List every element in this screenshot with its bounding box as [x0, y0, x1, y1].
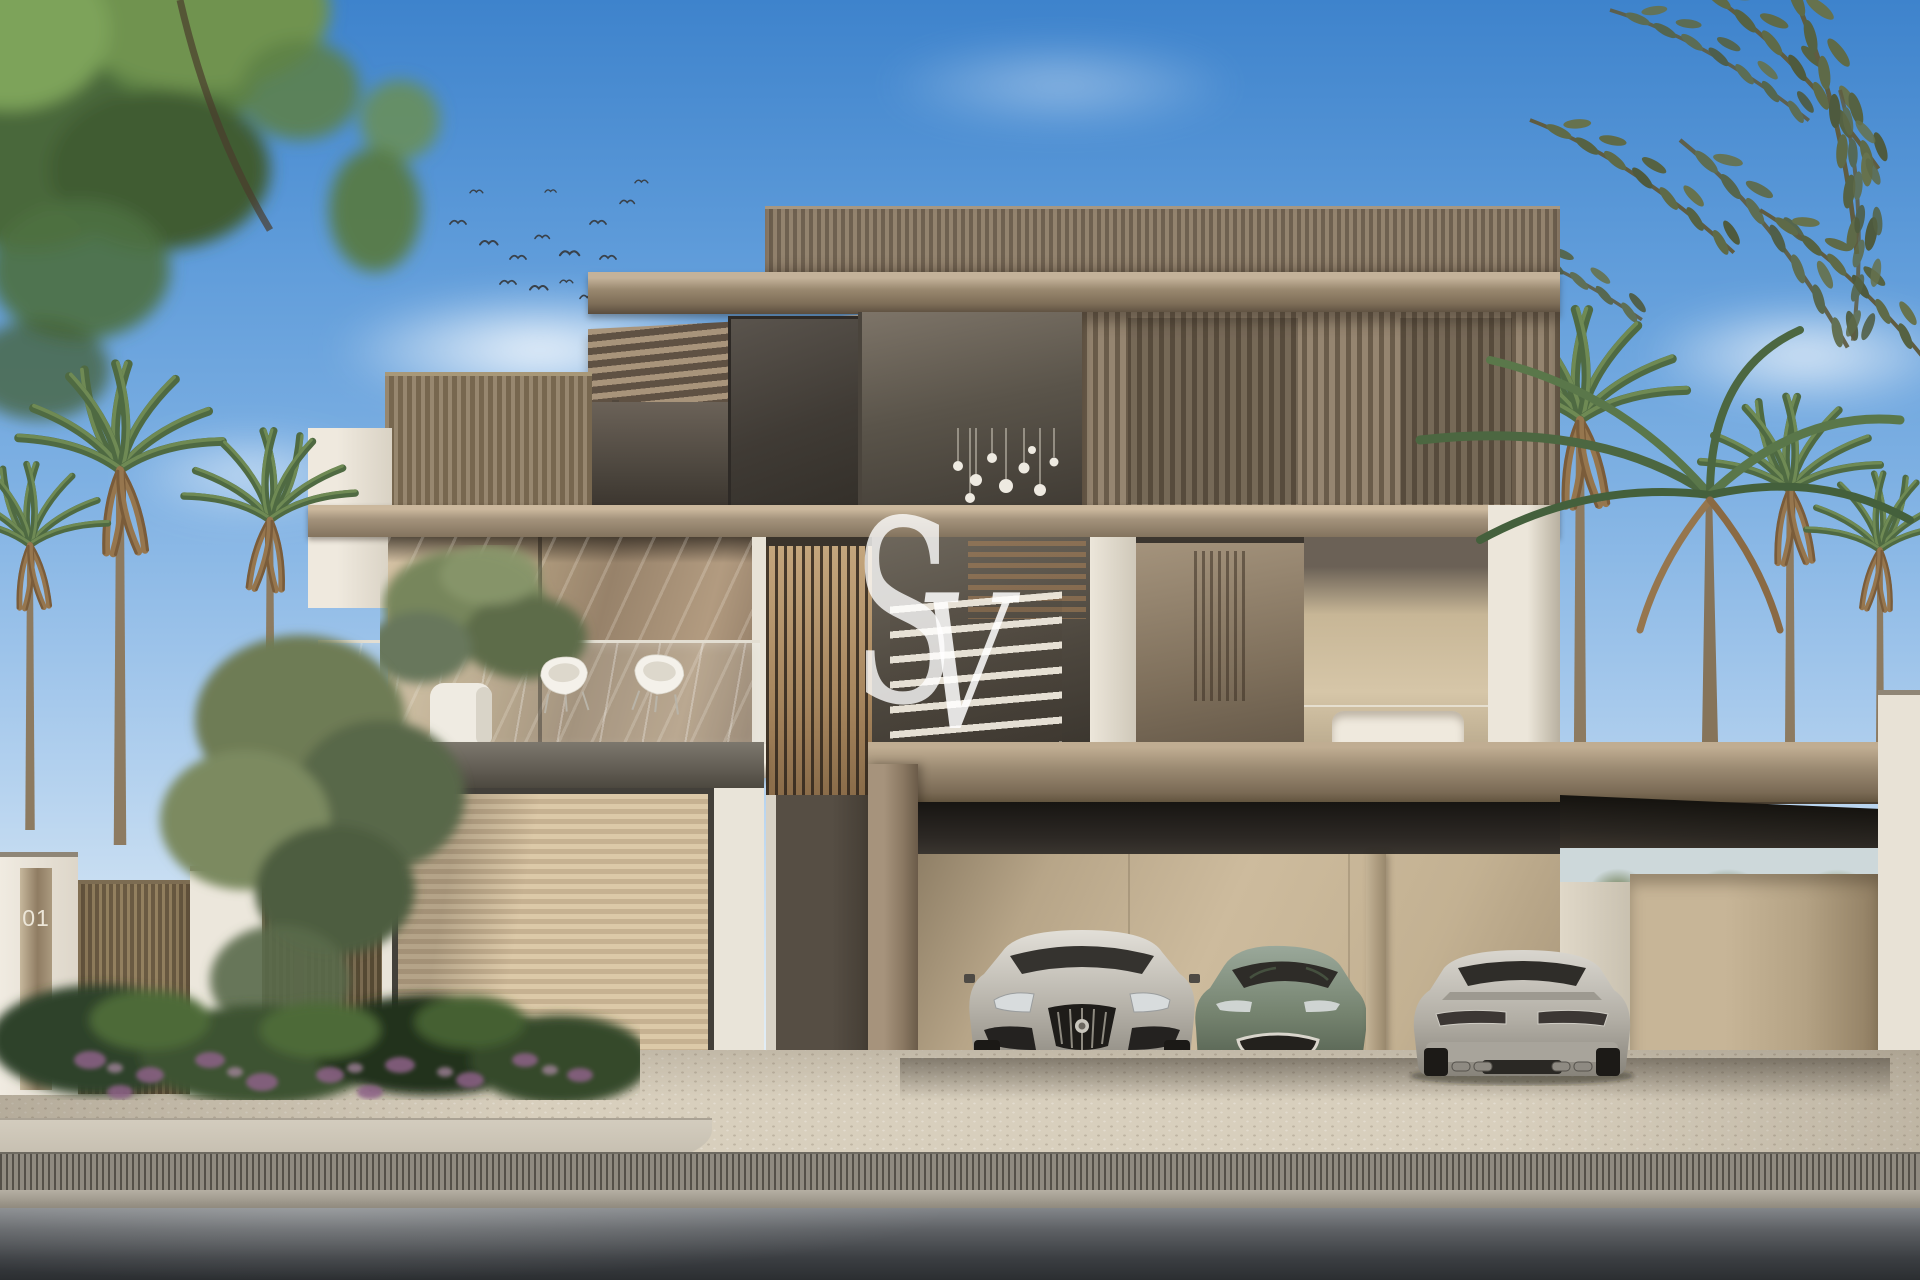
- entrance-door: [766, 795, 872, 1063]
- entrance-louver-screen: [766, 537, 872, 795]
- carport-shadow: [900, 1058, 1890, 1100]
- boundary-wall-right: [1878, 690, 1920, 1095]
- road-light-mist: [0, 1208, 1056, 1280]
- car-silver-rear: [1396, 910, 1648, 1086]
- staircase-window: [872, 537, 1090, 765]
- palm-tree-foreground-right: [1240, 300, 1920, 742]
- garage-opening-recess: [918, 802, 1560, 857]
- roof-parapet-slats: [765, 206, 1560, 279]
- pendant-lights: [940, 428, 1070, 512]
- lintel: [766, 537, 872, 546]
- curb-face: [0, 1190, 1920, 1208]
- cloud: [880, 40, 1240, 130]
- garage-middle-post: [1366, 854, 1386, 1082]
- terrace-slat-band: [385, 372, 592, 510]
- garden-bushes: [0, 985, 640, 1100]
- louver-rods: [766, 537, 872, 795]
- carport-timber-column: [868, 764, 918, 1082]
- olive-tree-foliage: [160, 635, 465, 1035]
- property-render-photo: 01: [0, 0, 1920, 1280]
- asphalt-road: [0, 1208, 1920, 1280]
- interior-stair-treads: [890, 591, 1062, 766]
- drain-grate: [0, 1152, 1920, 1192]
- carport-timber-beam: [868, 742, 1880, 804]
- terrace-glass: [592, 402, 742, 506]
- garden-foreground: [0, 560, 640, 1100]
- stone-pier: [1090, 537, 1136, 765]
- upper-window-dark: [728, 316, 866, 514]
